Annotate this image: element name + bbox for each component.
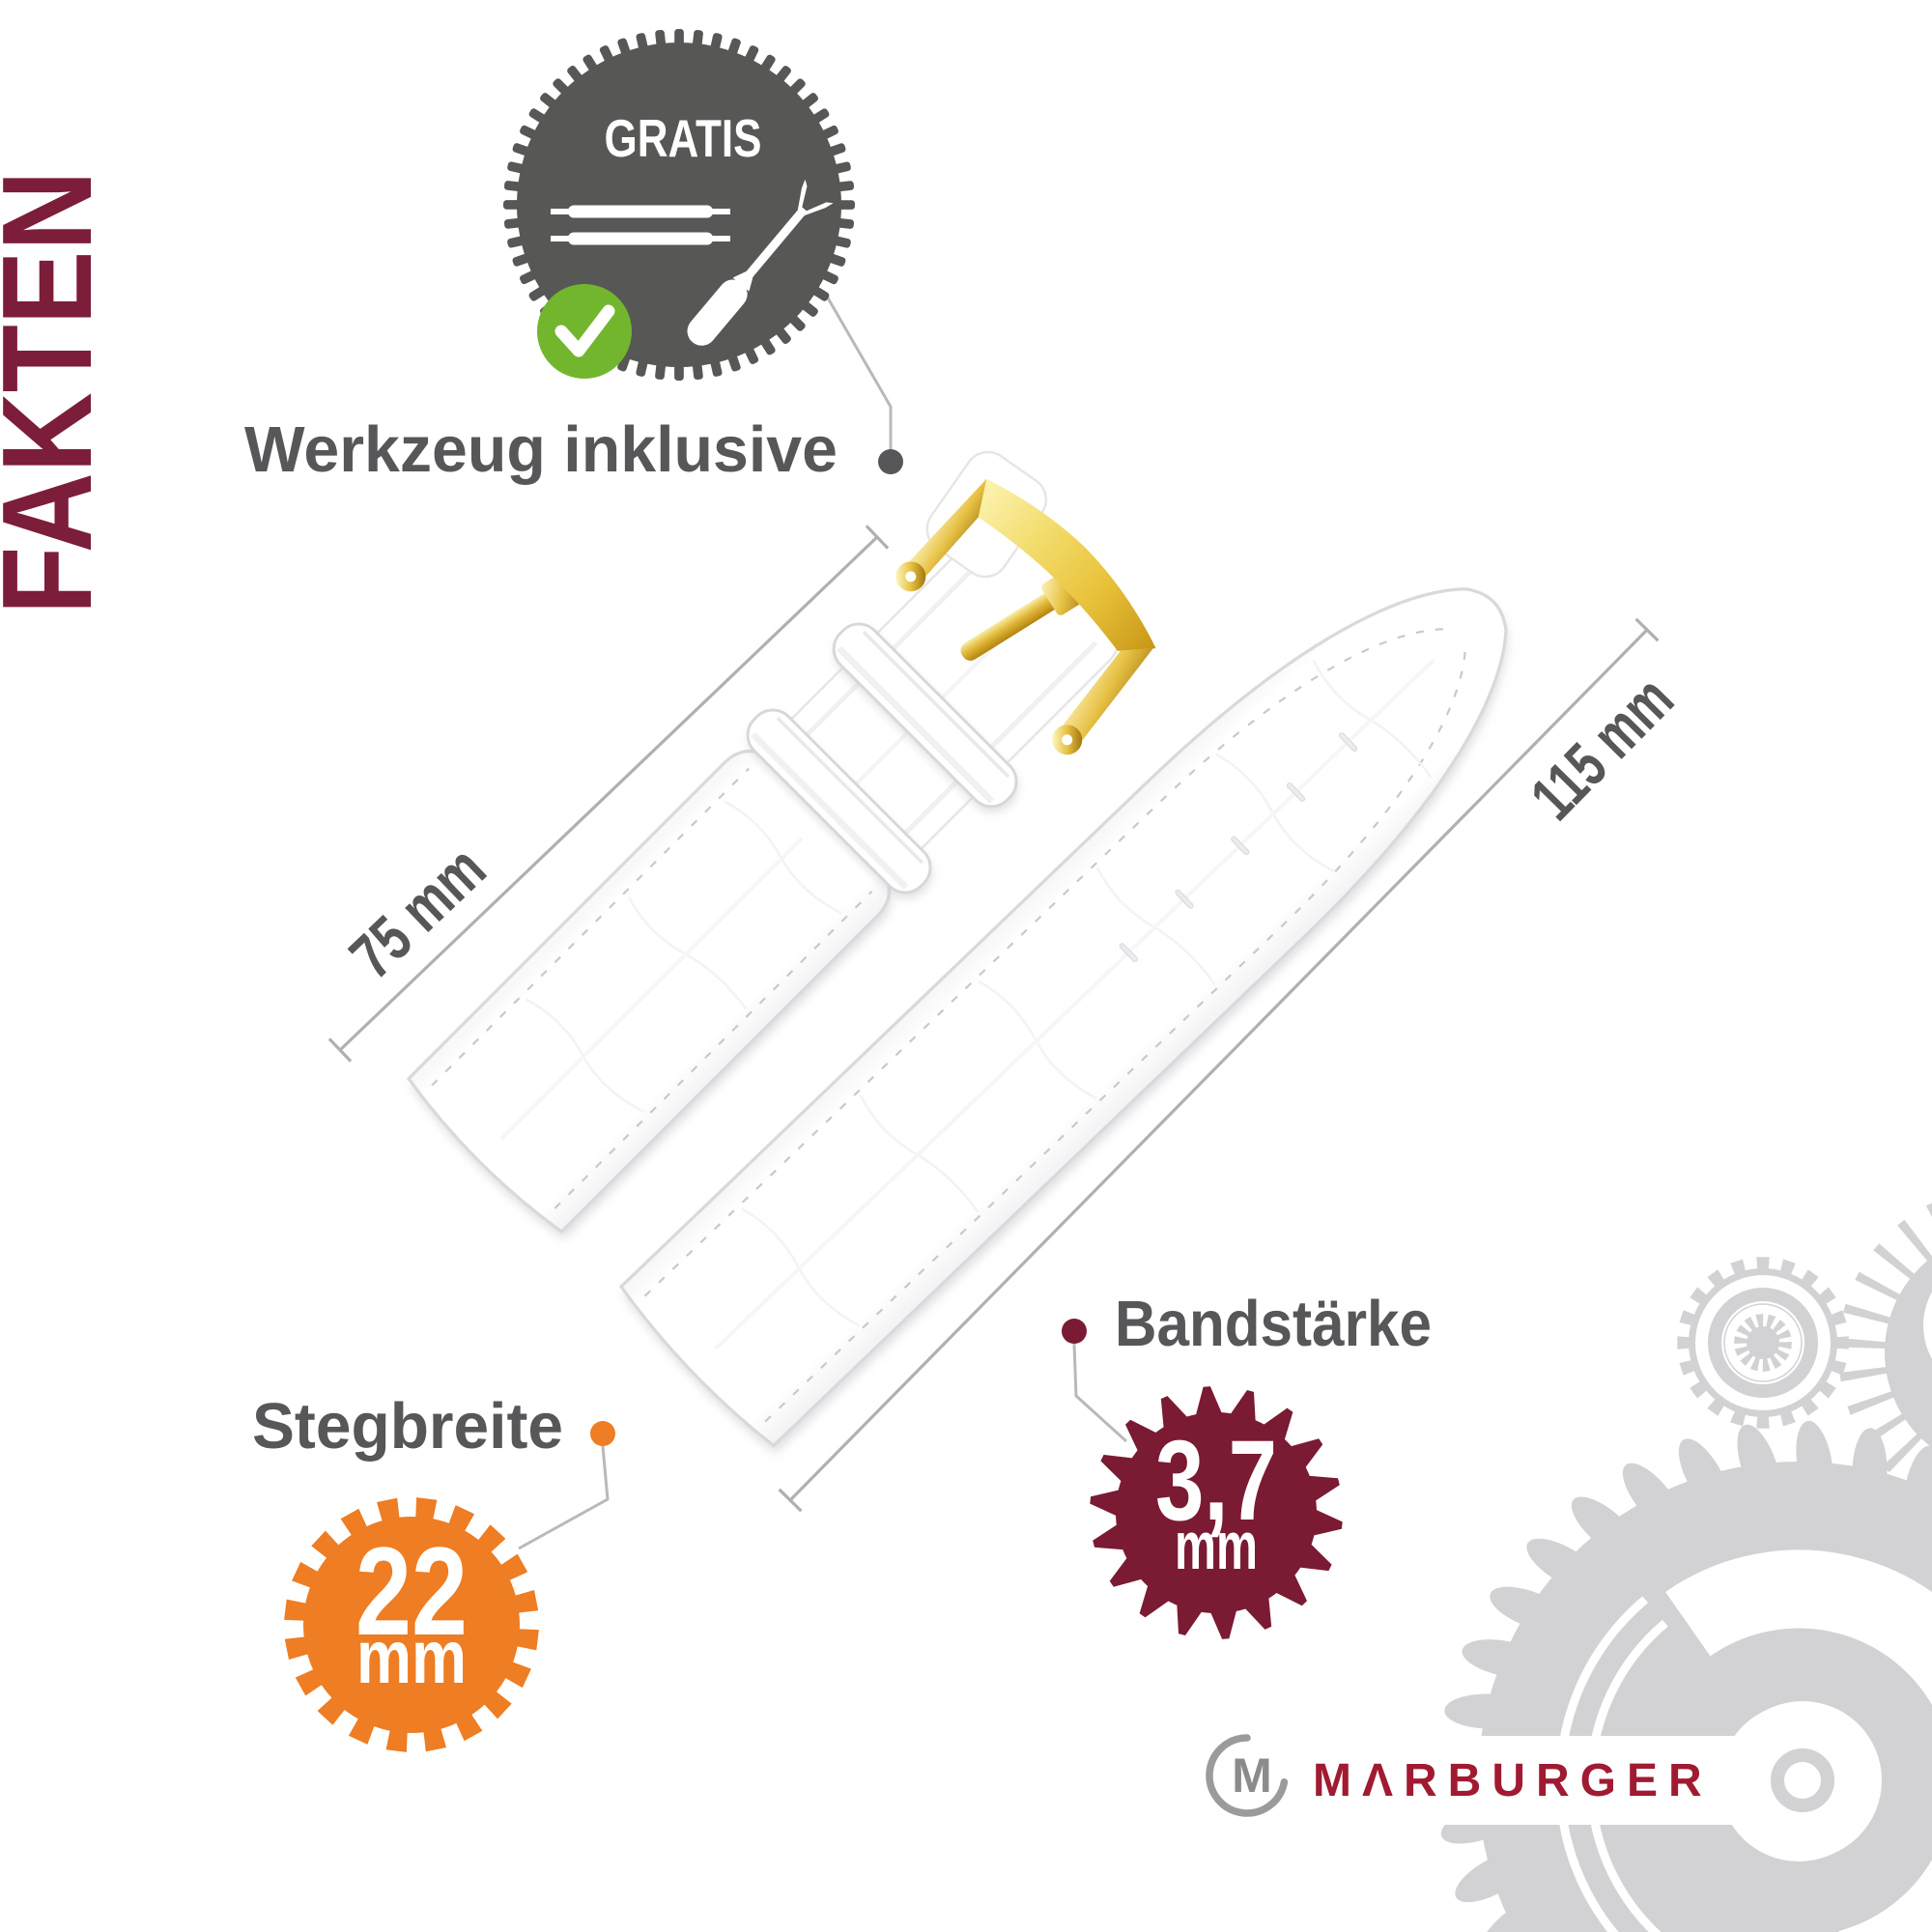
svg-text:GRATIS: GRATIS: [605, 108, 762, 168]
svg-text:Bandstärke: Bandstärke: [1115, 1288, 1432, 1360]
svg-text:FAKTEN: FAKTEN: [0, 171, 119, 614]
svg-text:Werkzeug inklusive: Werkzeug inklusive: [244, 413, 838, 486]
svg-text:mm: mm: [1175, 1508, 1258, 1583]
svg-text:Stegbreite: Stegbreite: [252, 1390, 563, 1463]
svg-text:mm: mm: [356, 1614, 467, 1699]
svg-text:M: M: [1232, 1748, 1272, 1803]
svg-text:MΛRBURGER: MΛRBURGER: [1313, 1755, 1713, 1806]
